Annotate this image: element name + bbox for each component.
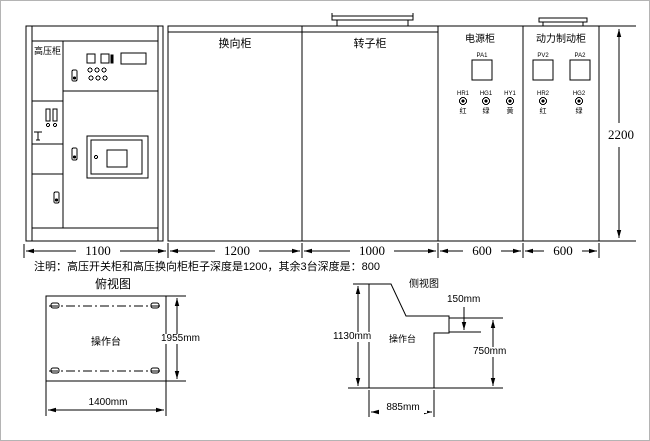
top-view-width-dim: 1400mm	[81, 398, 135, 408]
power-lamp1-tag: HR1	[453, 91, 473, 97]
dim-cabinet5-width: 600	[544, 244, 582, 257]
brake-meter2-tag: PA2	[568, 53, 592, 59]
power-meter-tag: PA1	[470, 53, 494, 59]
elevation-dimensions	[24, 26, 636, 258]
top-view-console-label: 操作台	[86, 338, 126, 348]
cabinet2-label: 换向柜	[213, 39, 257, 50]
top-view-title: 俯视图	[95, 278, 131, 290]
power-lamp3-color: 黄	[503, 108, 517, 115]
side-view-title: 侧视图	[409, 280, 439, 290]
brake-lamp1-tag: HR2	[533, 91, 553, 97]
side-view-front-dim: 750mm	[471, 347, 508, 357]
side-view-step-dim: 150mm	[447, 295, 480, 305]
cabinet3-label: 转子柜	[348, 39, 392, 50]
power-lamp2-tag: HG1	[476, 91, 496, 97]
side-view-depth-dim: 885mm	[379, 403, 427, 413]
power-lamp2-color: 绿	[479, 108, 493, 115]
dim-total-height: 2200	[600, 128, 642, 141]
line-work	[1, 1, 650, 441]
side-view-console-label: 操作台	[389, 335, 416, 344]
dim-cabinet4-width: 600	[463, 244, 501, 257]
dim-cabinet3-width: 1000	[350, 244, 394, 257]
engineering-drawing: 高压柜 换向柜 转子柜 电源柜 动力制动柜 PA1 HR1 HG1 HY1 红 …	[0, 0, 650, 441]
elevation-linework	[26, 13, 599, 241]
cabinet1-label: 高压柜	[34, 47, 61, 56]
cabinet5-label: 动力制动柜	[529, 35, 593, 45]
top-view-depth-dim: 1955mm	[159, 334, 202, 344]
cabinet4-label: 电源柜	[455, 35, 505, 45]
brake-lamp2-tag: HG2	[569, 91, 589, 97]
brake-lamp2-color: 绿	[572, 108, 586, 115]
brake-lamp1-color: 红	[536, 108, 550, 115]
power-lamp1-color: 红	[456, 108, 470, 115]
brake-meter1-tag: PV2	[531, 53, 555, 59]
depth-note: 注明：高压开关柜和高压换向柜柜子深度是1200，其余3台深度是：800	[34, 262, 380, 273]
dim-cabinet2-width: 1200	[215, 244, 259, 257]
side-view-height-dim: 1130mm	[331, 332, 373, 342]
dim-cabinet1-width: 1100	[76, 244, 120, 257]
power-lamp3-tag: HY1	[500, 91, 520, 97]
